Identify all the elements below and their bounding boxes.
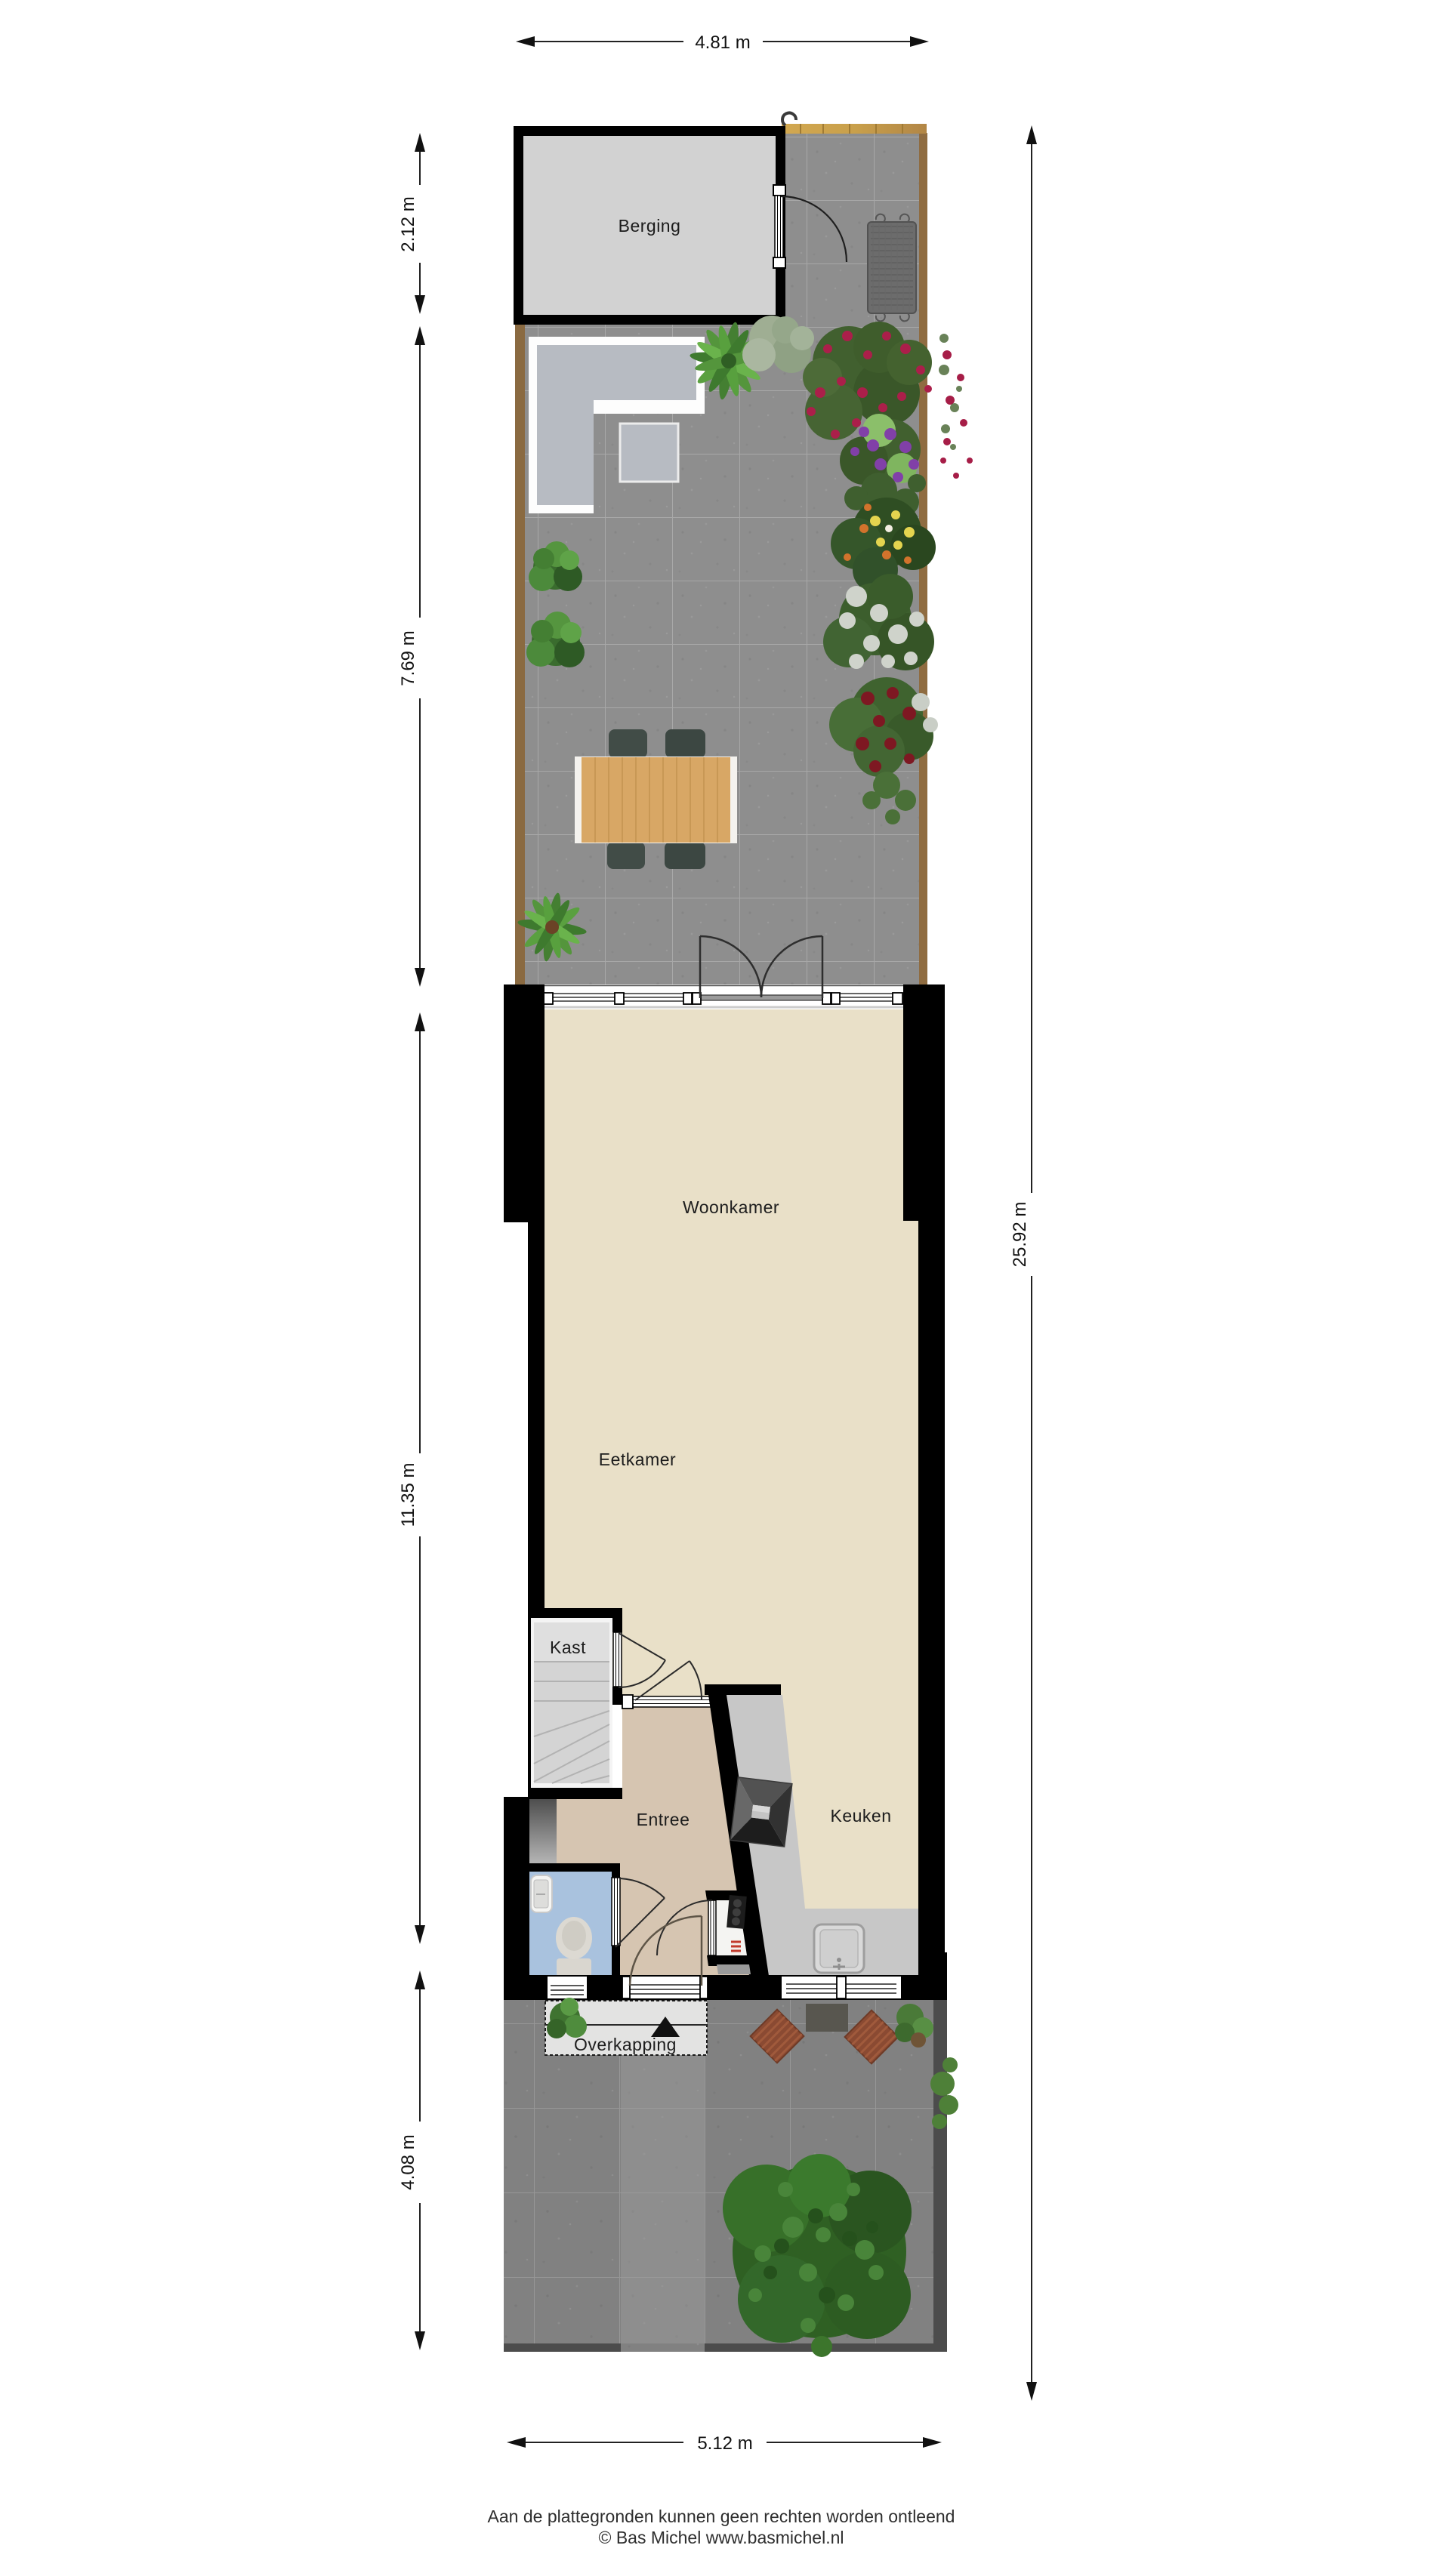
svg-text:Overkapping: Overkapping — [574, 2035, 677, 2054]
svg-text:5.12 m: 5.12 m — [697, 2433, 752, 2454]
svg-text:Kast: Kast — [550, 1638, 586, 1657]
svg-text:© Bas Michel www.basmichel.nl: © Bas Michel www.basmichel.nl — [599, 2528, 844, 2547]
svg-text:Eetkamer: Eetkamer — [599, 1450, 676, 1469]
svg-text:Entree: Entree — [637, 1810, 690, 1829]
svg-text:2.12 m: 2.12 m — [398, 196, 418, 251]
svg-text:7.69 m: 7.69 m — [398, 630, 418, 686]
svg-text:Keuken: Keuken — [830, 1806, 891, 1826]
svg-text:4.08 m: 4.08 m — [398, 2134, 418, 2189]
svg-text:Aan de plattegronden kunnen ge: Aan de plattegronden kunnen geen rechten… — [488, 2507, 955, 2526]
svg-text:Woonkamer: Woonkamer — [683, 1197, 779, 1217]
svg-text:4.81 m: 4.81 m — [695, 32, 750, 53]
svg-text:Berging: Berging — [619, 216, 681, 236]
svg-text:25.92 m: 25.92 m — [1010, 1202, 1030, 1268]
svg-text:11.35 m: 11.35 m — [398, 1463, 418, 1527]
